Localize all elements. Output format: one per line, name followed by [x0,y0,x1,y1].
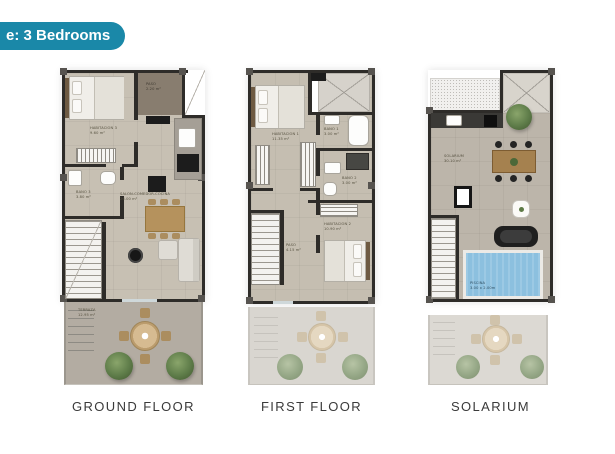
side-table [512,200,530,218]
shower [346,153,369,170]
bed-pillow [353,262,362,277]
room-label-solarium: SOLARIUM 30.10 m² [444,154,464,163]
bed-blanket [325,241,345,281]
pillar [368,297,375,304]
piscina-area: 3.00 x 2.00m [470,286,495,291]
coffee-table [128,248,143,263]
dining-chair [160,199,168,205]
bush-plant [520,355,544,379]
dining-chair [172,199,180,205]
roof-gravel [430,78,500,112]
dining-chair [525,175,532,182]
shaft [454,186,472,208]
room-label-bano2: BAÑO 2 3.00 m² [342,176,357,185]
room-label-bano3: BAÑO 3 3.80 m² [76,190,91,199]
caption-first-floor: FIRST FLOOR [248,399,375,414]
bed-pillow [72,99,82,113]
bano3-area: 3.80 m² [76,195,91,200]
terrace-chair [140,308,150,318]
stair-break-line [66,221,101,298]
pillar [179,68,186,75]
room-paso [138,73,182,115]
staircase [65,220,102,299]
ground-floor-terrace: TERRAZA 12.95 m² [64,302,203,385]
wall [316,235,320,253]
bush-plant [166,352,194,380]
caption-solarium: SOLARIUM [428,399,553,414]
wall [134,70,138,120]
wall [102,222,106,299]
wardrobe [320,204,358,217]
bed-pillow [72,81,82,95]
terrace-chair [316,311,326,321]
pillar [246,182,253,189]
first-floor-plan: HABITACIÓN 1 11.35 m² BAÑO 1 3.00 m² BAÑ… [248,70,375,390]
first-floor-building: HABITACIÓN 1 11.35 m² BAÑO 1 3.00 m² BAÑ… [248,70,375,304]
wall [182,70,185,118]
terrace-chair [490,315,500,325]
wall [293,301,375,304]
cooktop [484,115,497,127]
ground-floor-plan: PASO 2.20 m² [62,70,205,390]
terrace-steps [254,317,278,362]
terrace-steps [433,322,455,362]
wall [62,70,188,73]
room-label-paso: PASO 2.20 m² [146,82,161,91]
dining-chair [148,233,156,239]
room-label-piscina: PISCINA 3.00 x 2.00m [470,281,495,290]
sofa-back [193,239,199,281]
dining-table [492,150,536,173]
sink [324,115,340,125]
wall [300,188,316,191]
wall [62,216,124,219]
side-table-plant [519,207,524,212]
terrace-below-ghost [428,315,548,385]
wall [280,213,284,285]
terrace-chair [161,331,171,341]
floorplan-sheet: e: 3 Bedrooms PASO 2.20 m² [0,0,615,454]
staircase [251,213,280,285]
bbq-grate [500,230,532,243]
terraza-area: 12.95 m² [78,313,96,318]
terrace-chair [338,332,348,342]
bush-plant [277,354,303,380]
oven [177,154,199,172]
wardrobe [300,142,316,187]
pillar [368,182,375,189]
bush-plant [342,354,368,380]
pillar [198,295,205,302]
bed-blanket [278,86,304,128]
terrace-chair [119,331,129,341]
caption-ground-floor: GROUND FLOOR [62,399,205,414]
habitacion3-area: 9.60 m² [90,131,117,136]
wall [202,115,205,302]
terrace-chair [316,353,326,363]
habitacion2-area: 10.90 m² [324,227,351,232]
bush-plant [105,352,133,380]
room-label-bano1: BAÑO 1 3.00 m² [324,127,339,136]
terrace-table [130,321,160,351]
room-label-habitacion1: HABITACIÓN 1 11.35 m² [272,132,299,141]
room-label-paso2: PASO 4.15 m² [286,243,301,252]
pillar [60,68,67,75]
habitacion1-area: 11.35 m² [272,137,299,142]
wall [316,115,320,135]
cooktop-island [148,176,166,192]
ground-floor-building: PASO 2.20 m² [62,70,205,302]
bedrooms-badge: e: 3 Bedrooms [0,22,125,50]
solarium-area: 30.10 m² [444,159,464,164]
wall [456,218,459,299]
terrace-chair [297,332,307,342]
wall [62,164,106,167]
wall [120,167,124,180]
terrace-chair [490,355,500,365]
pillar [246,68,253,75]
paso2-area: 4.15 m² [286,248,301,253]
table-plant [510,158,518,166]
solarium-building: SOLARIUM 30.10 m² [428,70,553,302]
wardrobe [255,145,270,185]
terrace-chair [471,334,481,344]
room-label-terraza: TERRAZA 12.95 m² [78,308,96,317]
bano1-area: 3.00 m² [324,132,339,137]
kitchen-sink [446,115,462,126]
terrace-door [273,301,293,304]
entry-mat [146,116,170,124]
bed-habitacion3 [69,76,124,120]
potted-plant [506,104,532,130]
dining-chair [148,199,156,205]
sofa-chaise [158,240,178,260]
sofa [178,238,200,282]
dining-chair [510,175,517,182]
wall [500,70,503,113]
pillar [548,68,555,75]
wall [134,142,138,166]
pillar [60,174,67,181]
terrace-below-ghost [248,307,375,385]
bed-headboard [366,242,370,280]
kitchen-sink [178,128,196,148]
bed-pillow [258,90,268,105]
wall [500,70,553,73]
dining-chair [160,233,168,239]
solarium-plan: SOLARIUM 30.10 m² [428,70,553,390]
dining-chair [525,141,532,148]
wardrobe [76,148,116,163]
dining-table [145,206,185,232]
paso-area: 2.20 m² [146,87,161,92]
room-label-habitacion3: HABITACIÓN 3 9.60 m² [90,126,117,135]
wall [550,70,553,302]
toilet [100,171,116,185]
entry-mat [311,73,326,81]
sink [324,162,341,174]
pool: PISCINA 3.00 x 2.00m [463,250,543,299]
wall [320,148,372,151]
entry-porch [185,70,205,115]
bano2-area: 3.00 m² [342,181,357,186]
wall [316,148,320,176]
pillar [246,297,253,304]
room-label-habitacion2: HABITACIÓN 2 10.90 m² [324,222,351,231]
bbq-grill [494,226,538,247]
toilet [323,182,337,196]
dining-chair [495,175,502,182]
wall [122,164,138,167]
bed-blanket [94,77,124,119]
dining-chair [495,141,502,148]
pillar [548,296,555,303]
bush-plant [456,355,480,379]
terrace-chair [140,354,150,364]
wall [428,299,553,302]
sink [68,170,82,186]
bathtub [348,115,369,146]
staircase [431,218,456,299]
terrace-table [308,323,336,351]
bed-habitacion2 [324,240,366,282]
terrace-table [482,325,510,353]
bedrooms-badge-label: e: 3 Bedrooms [6,27,110,44]
bed-habitacion1 [255,85,305,129]
bed-pillow [258,108,268,123]
terrace-chair [512,334,522,344]
dining-chair [510,141,517,148]
pillar [368,68,375,75]
bed-pillow [353,244,362,259]
